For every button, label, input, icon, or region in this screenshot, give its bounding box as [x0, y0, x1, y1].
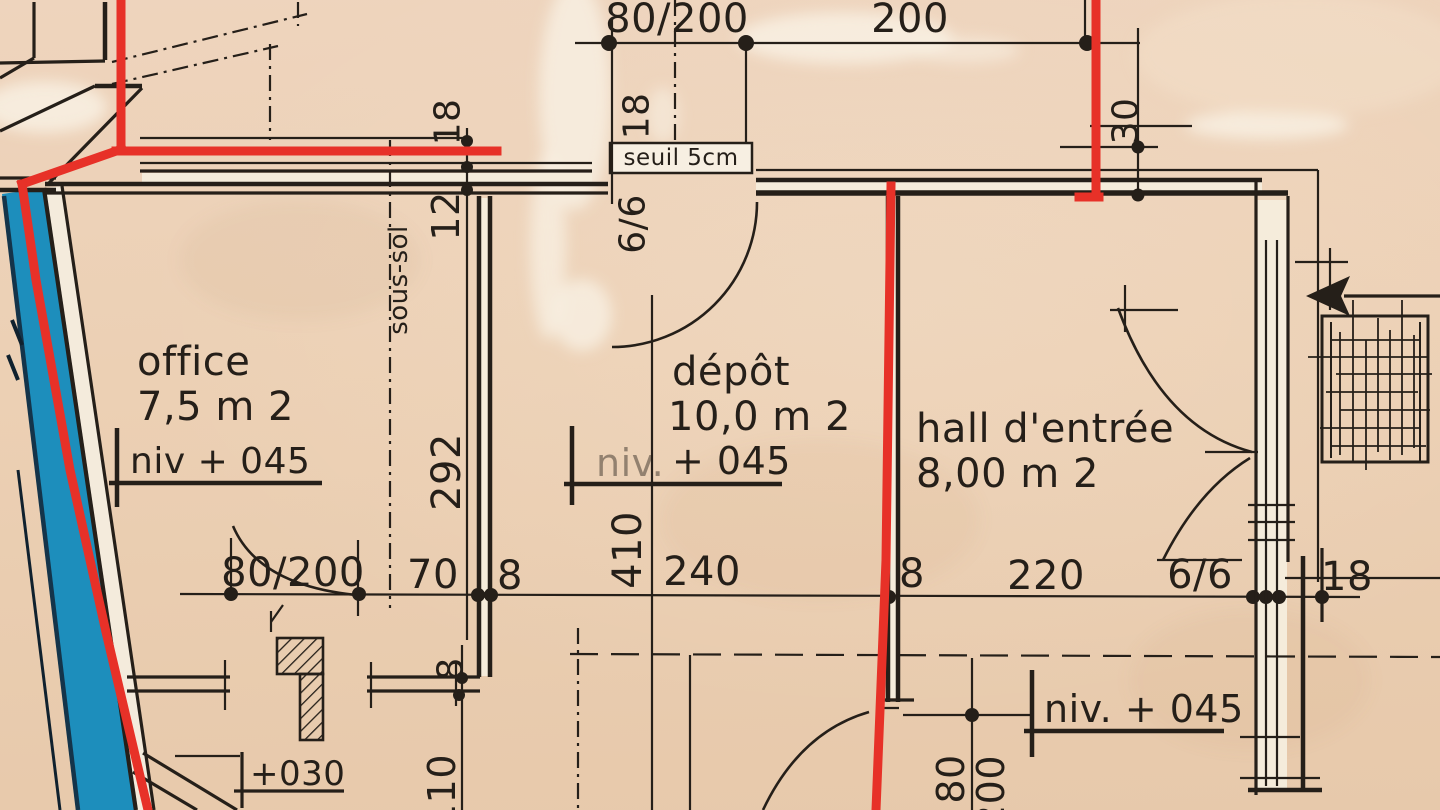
room-hall-area: 8,00 m 2 — [916, 451, 1099, 497]
room-office-level: niv + 045 — [130, 441, 310, 482]
basement-label: sous-sol — [384, 225, 414, 335]
dim-mid-70-label: 70 — [407, 552, 459, 598]
room-depot-name: dépôt — [672, 349, 790, 395]
room-depot-area: 10,0 m 2 — [668, 394, 851, 440]
dim-410-label: 410 — [605, 511, 651, 589]
dim-66-top-label: 6/6 — [613, 194, 654, 253]
threshold-label: seuil 5cm — [624, 145, 739, 171]
dim-mid-18-label: 18 — [1321, 554, 1373, 600]
dim-8-bottom-label: 8 — [431, 657, 472, 680]
level-030-label: +030 — [250, 754, 345, 794]
room-depot-level-prefix: niv. — [596, 441, 664, 485]
dim-mid-8-left-label: 8 — [497, 553, 523, 599]
floor-plan-scan: 80/200 200 18 18 30 seuil 5cm 6/6 12 sou… — [0, 0, 1440, 810]
dim-top-width-label: 200 — [871, 0, 949, 42]
dim-wall18-left-label: 18 — [428, 99, 469, 146]
hatched-pier — [277, 638, 323, 674]
dim-12-label: 12 — [424, 191, 468, 240]
shaft-grid — [1308, 300, 1432, 470]
dim-mid-240-label: 240 — [663, 549, 741, 595]
dim-mid-door-label: 80/200 — [221, 550, 365, 596]
dim-mid-66-label: 6/6 — [1167, 552, 1233, 598]
dim-wall18-mid-label: 18 — [617, 93, 658, 140]
room-hall-level: niv. + 045 — [1044, 687, 1244, 731]
dim-mid-220-label: 220 — [1007, 553, 1085, 599]
entrance-arrow-icon — [1306, 276, 1440, 316]
room-hall-name: hall d'entrée — [916, 406, 1174, 452]
dim-292-label: 292 — [424, 433, 470, 511]
floor-plan-drawing: 80/200 200 18 18 30 seuil 5cm 6/6 12 sou… — [0, 0, 1440, 810]
dim-mid-8-right-label: 8 — [899, 551, 925, 597]
bottom-door-arc — [763, 712, 869, 810]
dim-wall30-label: 30 — [1106, 98, 1147, 145]
room-office-area: 7,5 m 2 — [137, 384, 294, 430]
dim-110-label: 110 — [420, 754, 464, 810]
room-office-name: office — [137, 339, 250, 385]
dim-top-door-label: 80/200 — [605, 0, 749, 42]
hall-door-arc-lower — [1163, 458, 1250, 560]
dim-80-label: 80 — [929, 754, 973, 803]
room-depot-level-value: + 045 — [672, 439, 791, 483]
hatched-pier-lower — [300, 674, 323, 740]
dim-200-bottom-label: 200 — [969, 755, 1013, 810]
